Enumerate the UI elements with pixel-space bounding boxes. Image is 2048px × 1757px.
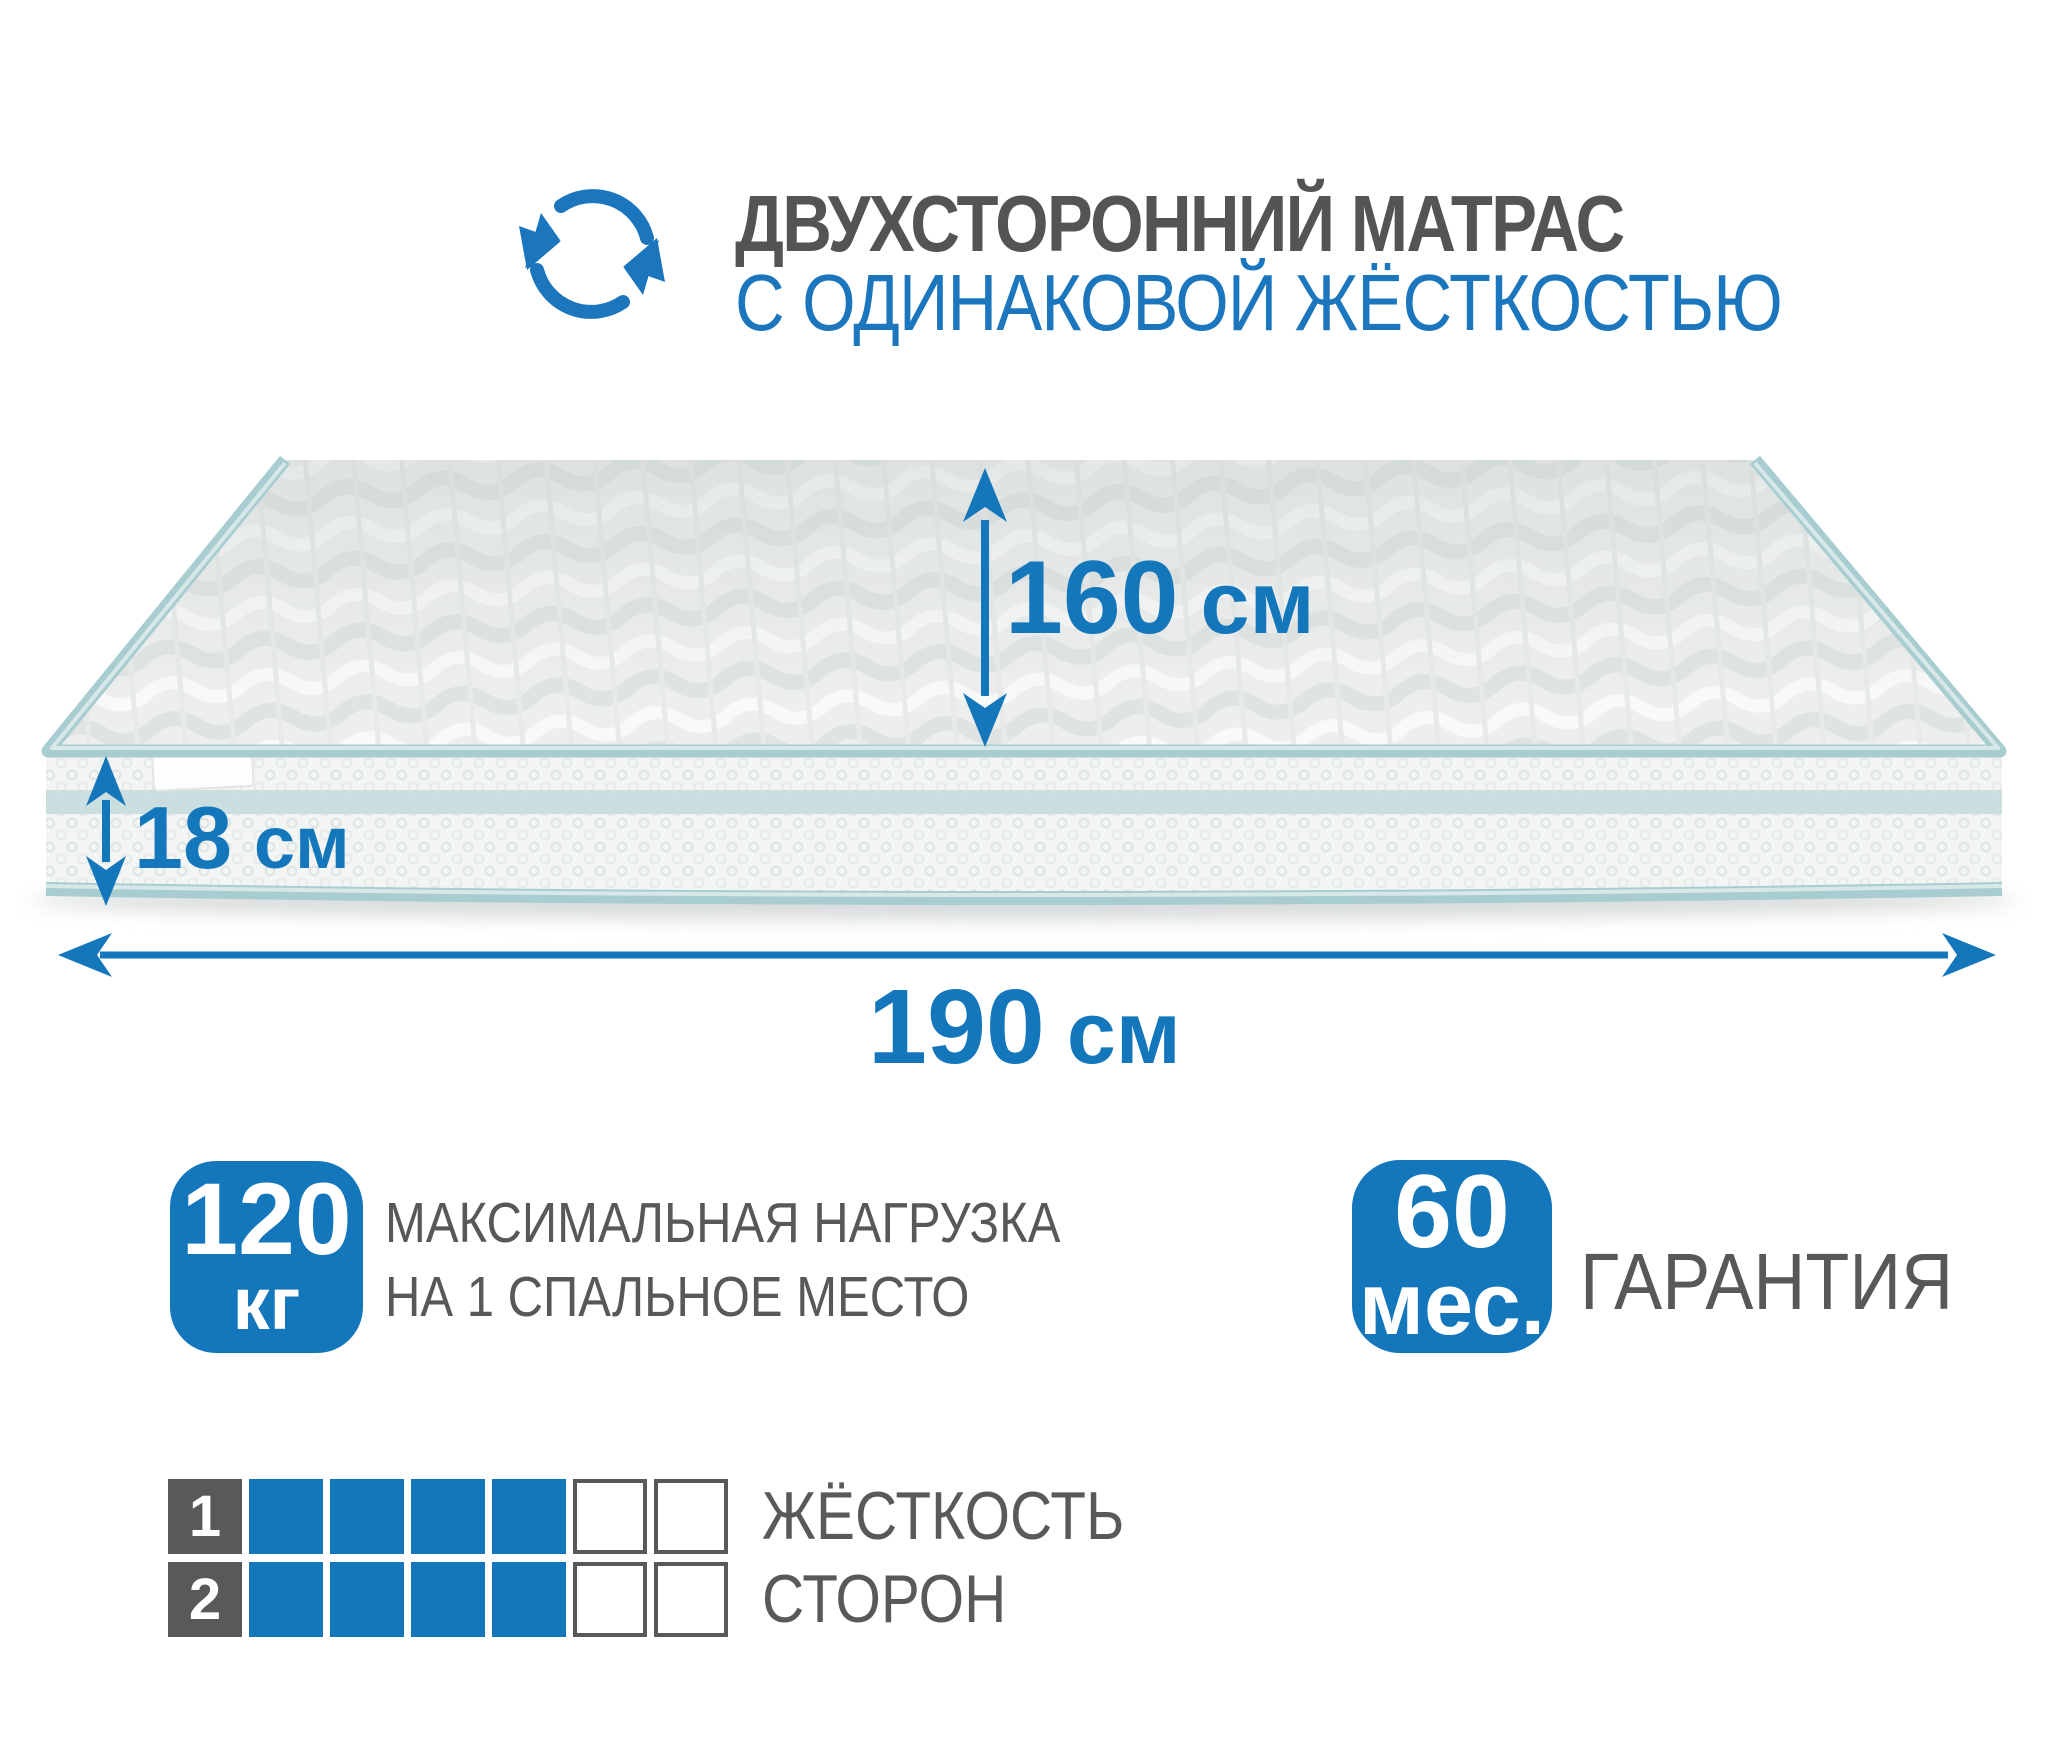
warranty-value: 60 xyxy=(1394,1165,1510,1261)
max-load-badge: 120 кг xyxy=(170,1161,363,1353)
warranty-unit: мес. xyxy=(1359,1260,1545,1348)
height-value: 18 xyxy=(134,794,232,882)
firmness-empty-square xyxy=(573,1479,647,1554)
height-unit: см xyxy=(254,806,350,880)
depth-value: 160 xyxy=(1005,546,1179,650)
firmness-side-number: 2 xyxy=(168,1562,242,1637)
max-load-value: 120 xyxy=(181,1173,351,1267)
dimension-length-label: 190 см xyxy=(868,974,1181,1080)
depth-unit: см xyxy=(1201,559,1315,647)
firmness-label-line-2: СТОРОН xyxy=(762,1562,1006,1637)
firmness-filled-square xyxy=(249,1479,323,1554)
firmness-empty-square xyxy=(654,1562,728,1637)
max-load-unit: кг xyxy=(233,1267,301,1341)
dimension-height-label: 18 см xyxy=(134,794,350,882)
firmness-empty-square xyxy=(654,1479,728,1554)
firmness-empty-square xyxy=(573,1562,647,1637)
firmness-filled-square xyxy=(330,1479,404,1554)
warranty-label: ГАРАНТИЯ xyxy=(1580,1242,1995,1322)
max-load-label-line-1: МАКСИМАЛЬНАЯ НАГРУЗКА xyxy=(385,1186,1060,1260)
firmness-scale-label: ЖЁСТКОСТЬ СТОРОН xyxy=(762,1479,1183,1637)
dimension-depth-label: 160 см xyxy=(1005,546,1315,650)
length-value: 190 xyxy=(868,974,1045,1080)
max-load-label-line-2: НА 1 СПАЛЬНОЕ МЕСТО xyxy=(385,1260,969,1334)
firmness-scale: 12 xyxy=(168,1479,728,1637)
mattress-infographic: ДВУХСТОРОННИЙ МАТРАС С ОДИНАКОВОЙ ЖЁСТКО… xyxy=(0,0,2048,1757)
firmness-filled-square xyxy=(249,1562,323,1637)
firmness-filled-square xyxy=(411,1479,485,1554)
firmness-row: 1 xyxy=(168,1479,728,1554)
firmness-label-line-1: ЖЁСТКОСТЬ xyxy=(762,1479,1124,1554)
firmness-filled-square xyxy=(411,1562,485,1637)
firmness-filled-square xyxy=(492,1562,566,1637)
firmness-side-number: 1 xyxy=(168,1479,242,1554)
warranty-label-text: ГАРАНТИЯ xyxy=(1580,1242,1953,1322)
max-load-label: МАКСИМАЛЬНАЯ НАГРУЗКА НА 1 СПАЛЬНОЕ МЕСТ… xyxy=(385,1186,1170,1334)
length-unit: см xyxy=(1067,989,1181,1077)
firmness-row: 2 xyxy=(168,1562,728,1637)
firmness-filled-square xyxy=(492,1479,566,1554)
warranty-badge: 60 мес. xyxy=(1352,1160,1552,1353)
firmness-filled-square xyxy=(330,1562,404,1637)
